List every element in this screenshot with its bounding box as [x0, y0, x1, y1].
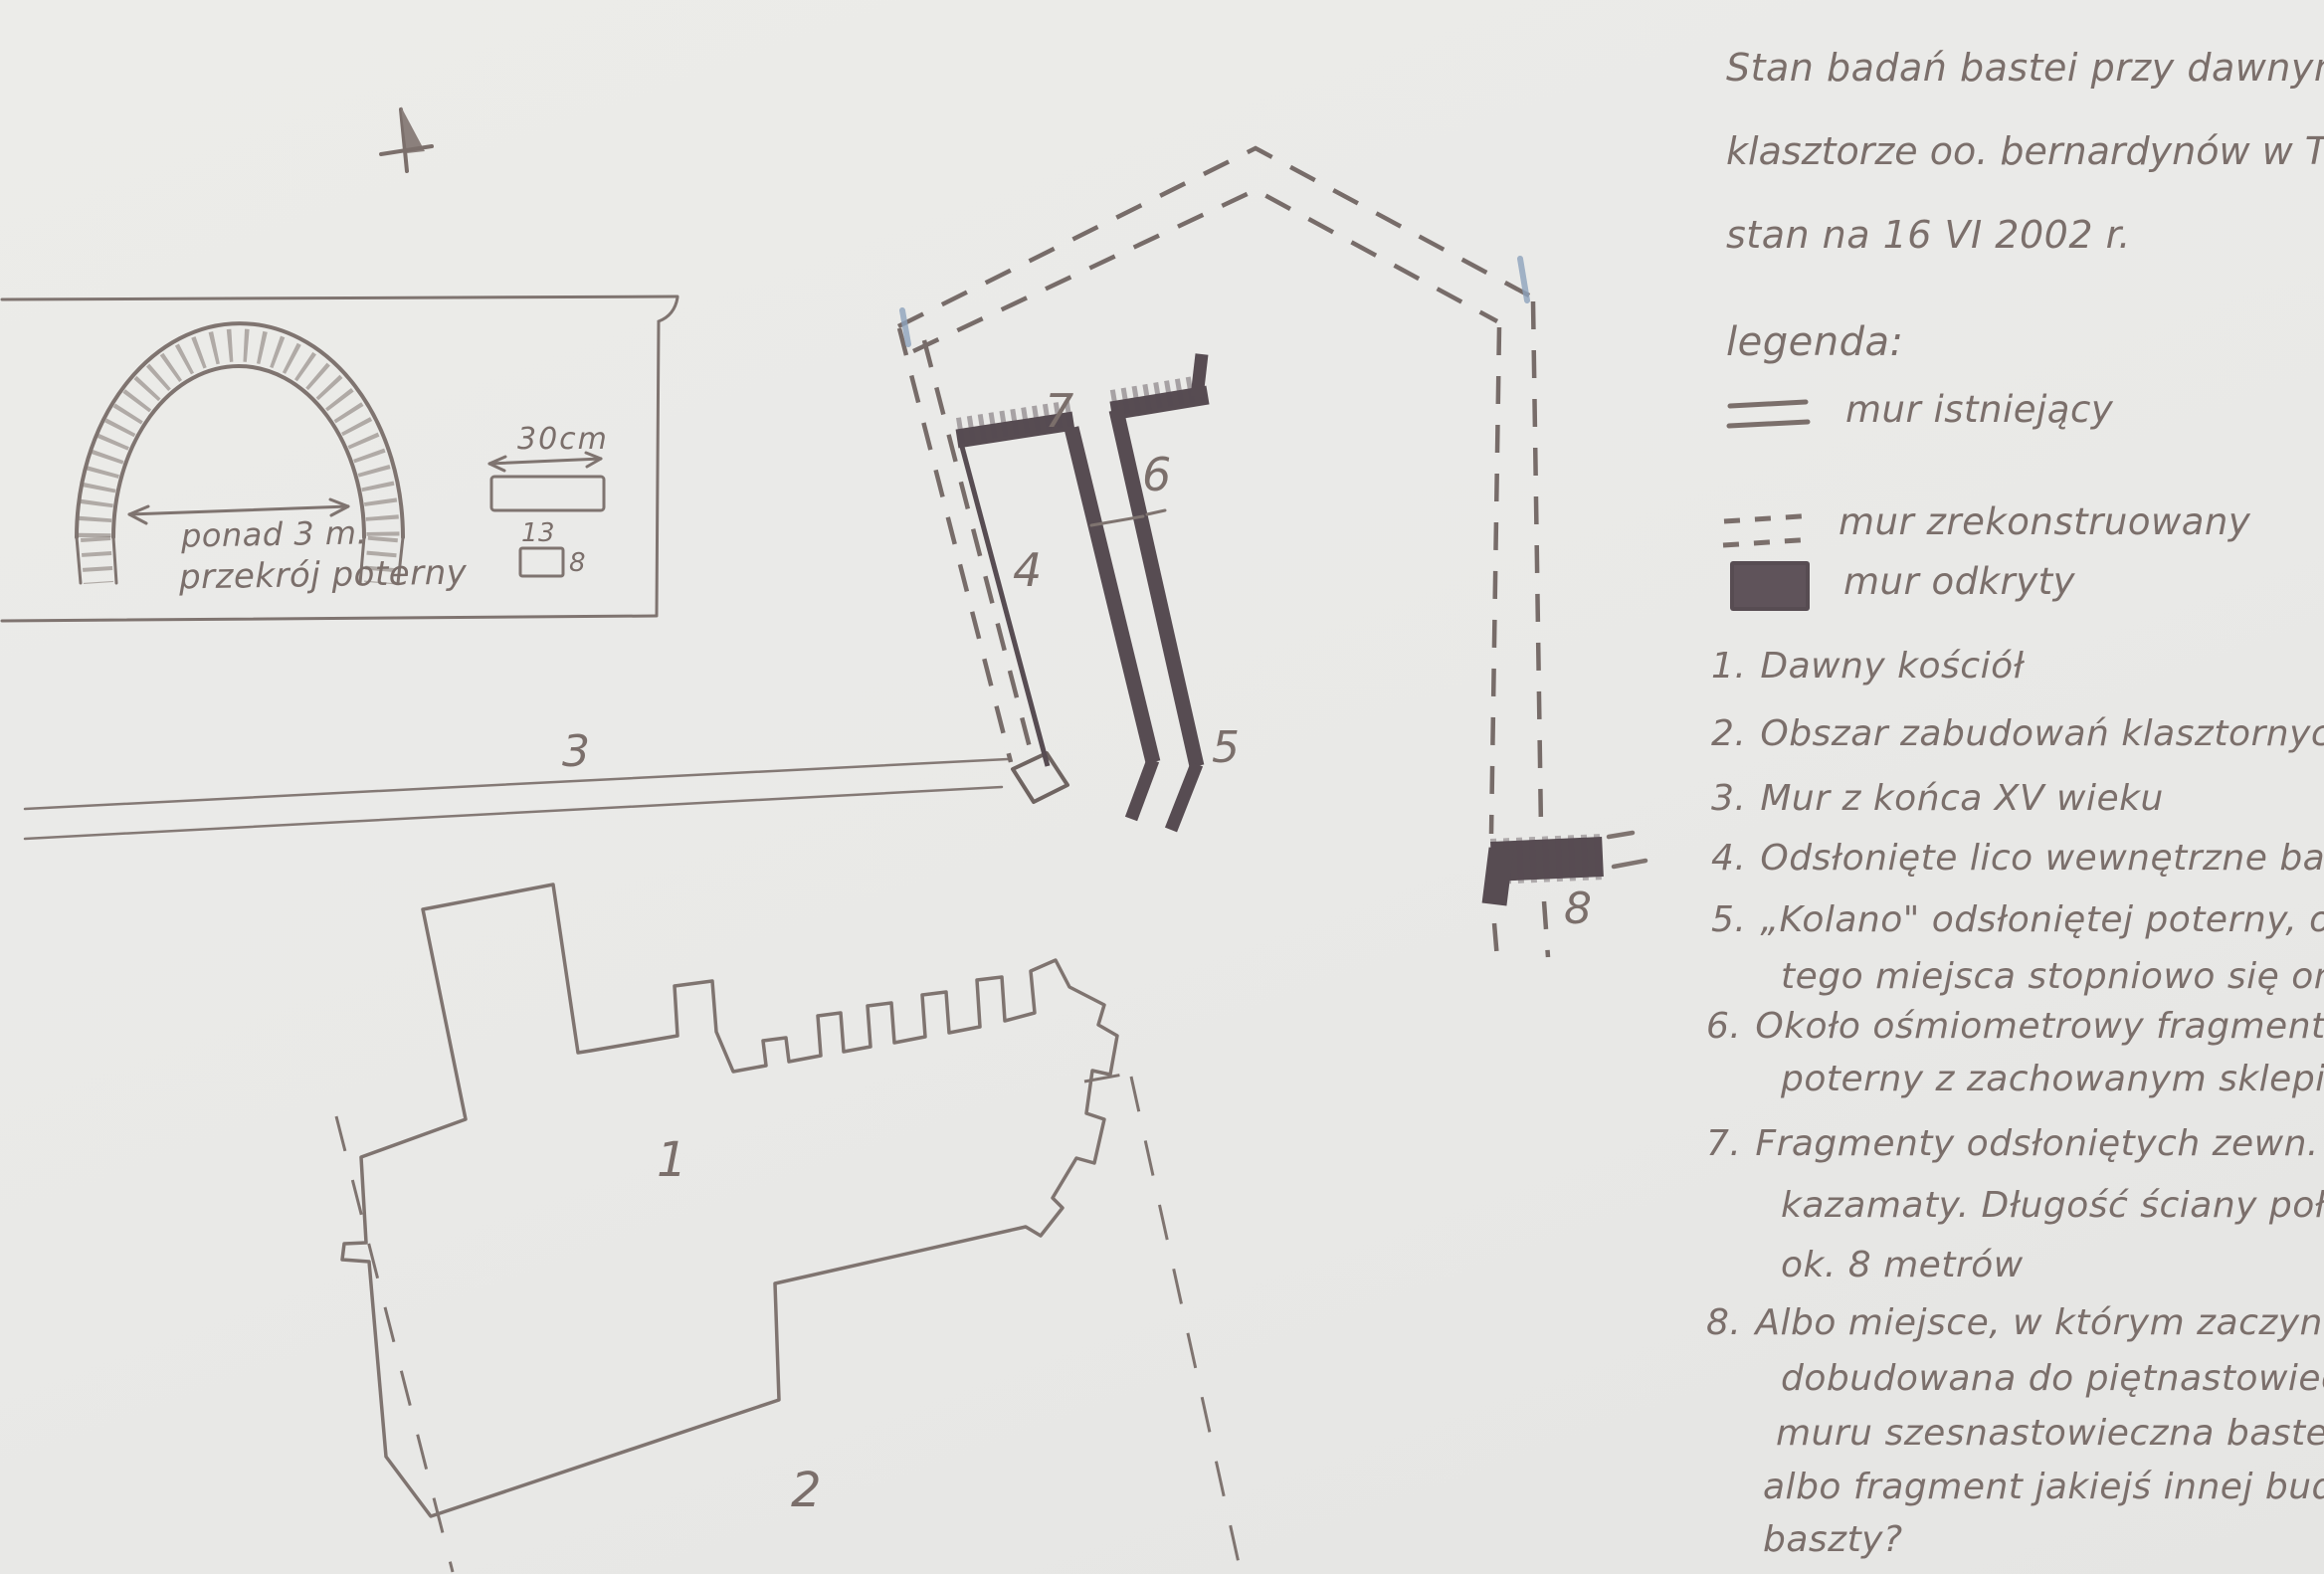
- inset-span-label: ponad 3 m.: [181, 515, 368, 553]
- inset-brick-height-label: 8: [569, 549, 586, 578]
- note-4-number: 4.: [1711, 838, 1746, 879]
- brick-small-rect: [520, 548, 563, 576]
- area-2-dashed-left: [336, 1116, 453, 1572]
- inset-brick-width-label: 13: [521, 519, 555, 548]
- excavated-wall-west: [1071, 428, 1153, 762]
- poterna-section-tick-2: [1147, 510, 1165, 514]
- dashed-inner-top: [913, 190, 1497, 351]
- note-5-number: 5.: [1711, 899, 1746, 940]
- existing-wall-symbol-icon: [1726, 396, 1816, 442]
- wall-junction-block: [1013, 753, 1067, 802]
- arch-voussoir-hatching: [95, 345, 383, 537]
- plan-label-poterna: 6: [1142, 450, 1172, 500]
- plan-label-monastery-area: 2: [791, 1465, 822, 1517]
- note-6-line-2: poterny z zachowanym sklepieniem: [1781, 1060, 2324, 1099]
- scale-bar: [489, 453, 604, 576]
- note-7-line-3: ok. 8 metrów: [1781, 1246, 2024, 1285]
- dashed-outer-top: [898, 148, 1529, 326]
- inset-border-top: [2, 296, 678, 299]
- note-4: 4.Odsłonięte lico wewnętrzne bastei: [1711, 839, 2324, 879]
- note-1: 1.Dawny kościół: [1711, 647, 2024, 687]
- note-5-text: „Kolano" odsłoniętej poterny, od: [1760, 899, 2324, 940]
- note-1-text: Dawny kościół: [1760, 646, 2024, 687]
- legend-label-uncovered-wall: mur odkryty: [1843, 562, 2075, 603]
- plan-label-wall-xv: 3: [562, 728, 591, 776]
- note-8-line-2: dobudowana do piętnastowiecznego: [1781, 1359, 2324, 1399]
- dashed-left-outer: [899, 328, 1011, 762]
- inset-border-bottom: [2, 616, 657, 621]
- corner-tick-marks: [902, 259, 1527, 344]
- plan-label-inner-face: 4: [1013, 545, 1043, 596]
- sheet-title-line-1: Stan badań bastei przy dawnym: [1726, 48, 2324, 90]
- area-2-dashed-right: [1131, 1077, 1241, 1572]
- note-2-text: Obszar zabudowań klasztornych: [1760, 713, 2324, 754]
- note-8-text: Albo miejsce, w którym zaczyna się: [1755, 1302, 2324, 1343]
- note-6: 6.Około ośmiometrowy fragment: [1706, 1007, 2324, 1047]
- note-7-text: Fragmenty odsłoniętych zewn. ścian: [1755, 1123, 2324, 1164]
- arch-leg-left-hatch: [96, 537, 98, 583]
- inset-scale-label: 30cm: [517, 423, 609, 456]
- note-1-number: 1.: [1711, 646, 1746, 687]
- note-6-text: Około ośmiometrowy fragment: [1755, 1006, 2324, 1047]
- plan-label-church: 1: [657, 1134, 687, 1187]
- arch-leg-left-outer: [77, 537, 81, 583]
- note-7: 7.Fragmenty odsłoniętych zewn. ścian: [1706, 1124, 2324, 1164]
- blue-tick-right-corner: [1520, 259, 1527, 300]
- fragment-8-dash-1: [1609, 833, 1633, 837]
- arch-leg-left-inner: [113, 537, 116, 583]
- legend-heading: legenda:: [1726, 320, 1903, 364]
- church-building-outline: [342, 885, 1117, 1516]
- note-3-number: 3.: [1711, 778, 1746, 819]
- plan-label-knee: 5: [1212, 724, 1241, 772]
- fragment-8-dash-2: [1614, 861, 1646, 867]
- wall-reconstructed-dashed: [898, 148, 1548, 959]
- scale-arrow: [489, 459, 601, 464]
- site-plan-sheet: 1 2 3 4 5 6 7 8 30cm 13 8 ponad 3 m. prz…: [0, 0, 2324, 1574]
- plan-label-junction: 8: [1564, 885, 1593, 933]
- note-2: 2.Obszar zabudowań klasztornych: [1711, 714, 2324, 754]
- note-7-number: 7.: [1706, 1123, 1741, 1164]
- sheet-title-line-3: stan na 16 VI 2002 r.: [1726, 215, 2131, 257]
- inset-border-right: [657, 297, 678, 615]
- trench-4-left-edge: [962, 447, 1048, 766]
- note-5-line-2: tego miejsca stopniowo się ona obniża: [1781, 957, 2324, 997]
- sheet-title-line-2: klasztorze oo. bernardynów w Tarnowie,: [1726, 131, 2324, 173]
- note-7-line-2: kazamaty. Długość ściany połudn.: [1781, 1186, 2324, 1226]
- note-8-number: 8.: [1706, 1302, 1741, 1343]
- note-5: 5.„Kolano" odsłoniętej poterny, od: [1711, 900, 2324, 940]
- legend-label-existing-wall: mur istniejący: [1845, 390, 2113, 431]
- plan-label-casemate: 7: [1045, 386, 1074, 437]
- excavated-wall-west-knee: [1131, 760, 1153, 819]
- reconstructed-wall-symbol-icon: [1721, 509, 1821, 559]
- monastery-area-boundary: [336, 1074, 1241, 1572]
- wall-3-existing: [25, 759, 1008, 839]
- inset-caption: przekrój poterny: [179, 554, 468, 596]
- excavated-fragment-8-stub: [1494, 849, 1501, 904]
- legend-label-reconstructed-wall: mur zrekonstruowany: [1839, 502, 2250, 543]
- brick-30cm-rect: [491, 477, 604, 510]
- excavated-wall-east-knee: [1171, 764, 1197, 830]
- excavated-cap-6-stub: [1197, 354, 1202, 397]
- note-3-text: Mur z końca XV wieku: [1760, 778, 2163, 819]
- note-8: 8.Albo miejsce, w którym zaczyna się: [1706, 1303, 2324, 1343]
- note-8-line-5: baszty?: [1763, 1520, 1903, 1560]
- note-8-line-4: albo fragment jakiejś innej budowli -: [1763, 1468, 2324, 1507]
- note-4-text: Odsłonięte lico wewnętrzne bastei: [1760, 838, 2324, 879]
- note-8-line-3: muru szesnastowieczna basteja;: [1776, 1414, 2324, 1454]
- note-6-number: 6.: [1706, 1006, 1741, 1047]
- note-2-number: 2.: [1711, 713, 1746, 754]
- note-3: 3.Mur z końca XV wieku: [1711, 779, 2164, 819]
- uncovered-wall-symbol-icon: [1728, 557, 1818, 621]
- north-arrow-icon: [381, 106, 432, 171]
